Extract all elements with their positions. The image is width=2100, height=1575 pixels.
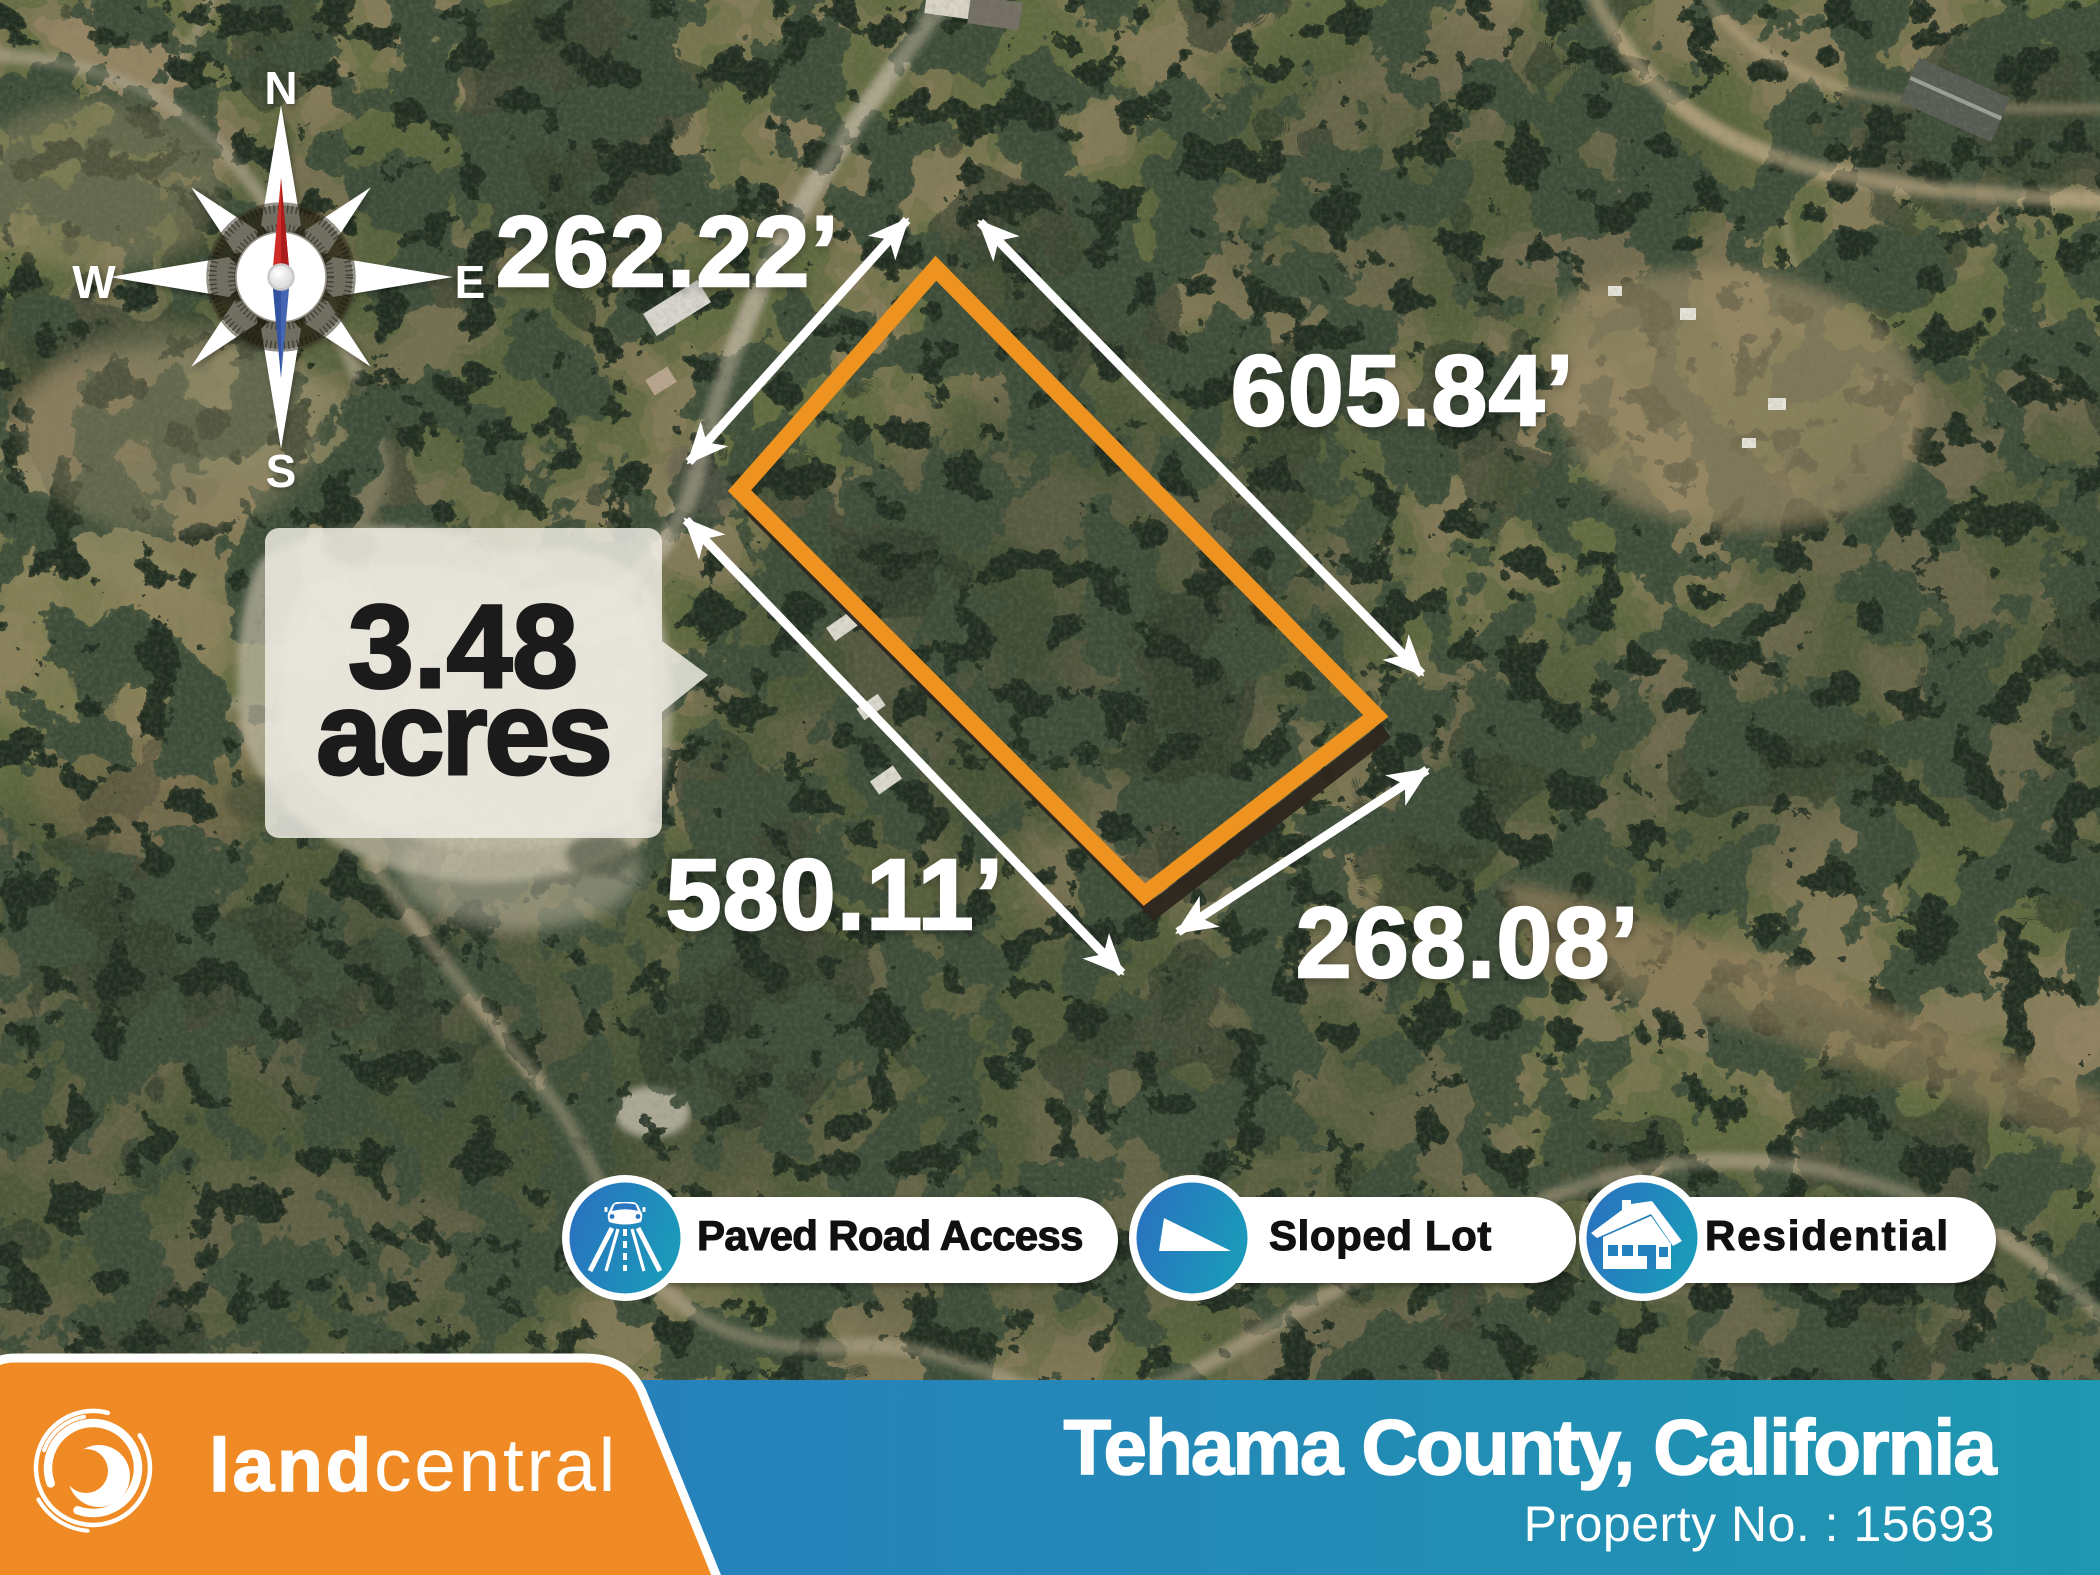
svg-text:262.22’: 262.22’ xyxy=(496,196,840,308)
svg-text:acres: acres xyxy=(316,668,609,800)
svg-text:Property No. : 15693: Property No. : 15693 xyxy=(1524,1496,1995,1552)
svg-text:580.11’: 580.11’ xyxy=(666,839,1005,951)
svg-text:Sloped Lot: Sloped Lot xyxy=(1269,1212,1492,1259)
svg-text:S: S xyxy=(266,445,297,497)
svg-text:605.84’: 605.84’ xyxy=(1231,335,1575,447)
svg-text:268.08’: 268.08’ xyxy=(1296,887,1640,999)
svg-text:Paved Road Access: Paved Road Access xyxy=(697,1212,1083,1259)
svg-text:E: E xyxy=(455,256,486,308)
svg-text:W: W xyxy=(72,256,116,308)
svg-text:landcentral: landcentral xyxy=(209,1423,618,1507)
svg-text:Residential: Residential xyxy=(1705,1212,1950,1259)
svg-text:N: N xyxy=(264,62,297,114)
svg-text:Tehama County, California: Tehama County, California xyxy=(1063,1403,1997,1491)
